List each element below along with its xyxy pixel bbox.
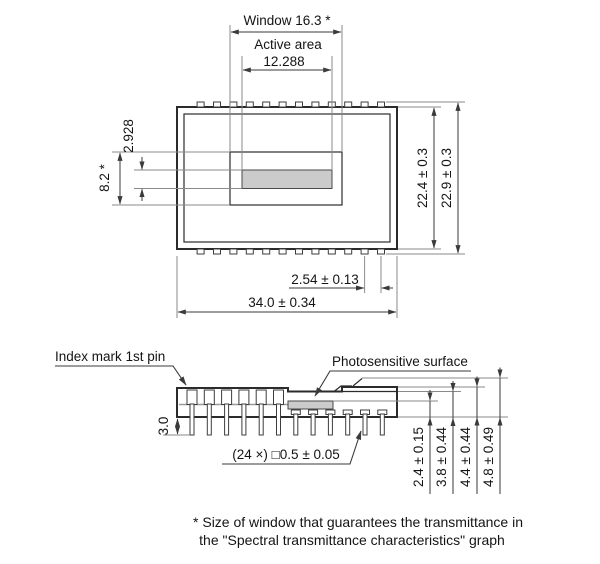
pin-pad [279,102,286,107]
pin-leg [311,414,315,435]
pin-leg [346,414,350,435]
pin-pad [263,102,270,107]
pin-cross-section-label: (24 ×) □0.5 ± 0.05 [232,447,340,462]
pin-shoulder [239,390,249,405]
pin-pad [197,249,204,254]
pin-pad [345,102,352,107]
pin-pad [378,102,385,107]
pin-shoulder [204,390,214,405]
pin-pad [296,102,303,107]
window-height-dim-label: 8.2 * [97,163,112,192]
pin-length-dim-label: 3.0 [156,417,171,436]
pin-pad [214,249,221,254]
active-width-dim-label: 12.288 [263,54,304,69]
pin-leg [294,414,298,435]
pin-pad [279,249,286,254]
body-height-dim-label: 4.4 ± 0.44 [458,427,473,487]
pin-pad [361,249,368,254]
pin-pad [361,102,368,107]
pin-leg [277,404,281,435]
package-width-dim-label: 34.0 ± 0.34 [248,295,316,310]
pin-leg [207,404,211,435]
pin-leg [225,404,229,435]
pin-leg [190,404,194,435]
pin-pad [312,249,319,254]
window-bottom-dim-label: 3.8 ± 0.44 [434,427,449,487]
pin-shoulder [256,390,266,405]
index-mark-label: Index mark 1st pin [55,349,165,364]
pin-shoulder [187,390,197,405]
active-area-label: Active area [254,37,322,52]
pin-pad [263,249,270,254]
overall-height-side-dim-label: 4.8 ± 0.49 [481,427,496,487]
pin-pad [312,102,319,107]
window-width-dim-label: Window 16.3 * [243,13,331,28]
pin-pitch-dim-label: 2.54 ± 0.13 [291,272,358,287]
footnote-line-1: * Size of window that guarantees the tra… [193,514,523,530]
pin-pad [328,249,335,254]
pin-leg [242,404,246,435]
top-view: Window 16.3 * Active area 12.288 8.2 * 2… [97,13,465,318]
pin-pad [345,249,352,254]
footnote-line-2: the "Spectral transmittance characterist… [199,532,505,548]
pin-leg [363,414,367,435]
active-area [242,170,332,189]
pin-leg [328,414,332,435]
pin-leg [259,404,263,435]
side-view: 3.0 2.4 ± 0.15 3.8 ± 0.44 4.4 ± 0.44 4.8… [55,349,508,494]
pin-pad [296,249,303,254]
overall-height-dim-label: 22.9 ± 0.3 [439,148,454,208]
pin-pad [378,249,385,254]
glass-step-mark [353,379,362,387]
pin-pad [230,102,237,107]
pin-shoulder [274,390,284,405]
pin-shoulder [222,390,232,405]
surface-height-dim-label: 2.4 ± 0.15 [411,427,426,487]
index-mark-leader [55,366,186,385]
footnote: * Size of window that guarantees the tra… [193,514,523,548]
pin-pad [214,102,221,107]
pin-pad [197,102,204,107]
active-height-dim-label: 2.928 [121,119,136,153]
package-height-dim-label: 22.4 ± 0.3 [415,148,430,208]
pin-pad [246,102,253,107]
mechanical-drawing: Window 16.3 * Active area 12.288 8.2 * 2… [0,0,600,564]
drawing-canvas: Window 16.3 * Active area 12.288 8.2 * 2… [0,0,600,564]
pin-pad [246,249,253,254]
photosensitive-surface-label: Photosensitive surface [332,354,468,369]
photosensitive-surface [288,401,333,409]
pin-leg [380,414,384,435]
pin-pad [230,249,237,254]
